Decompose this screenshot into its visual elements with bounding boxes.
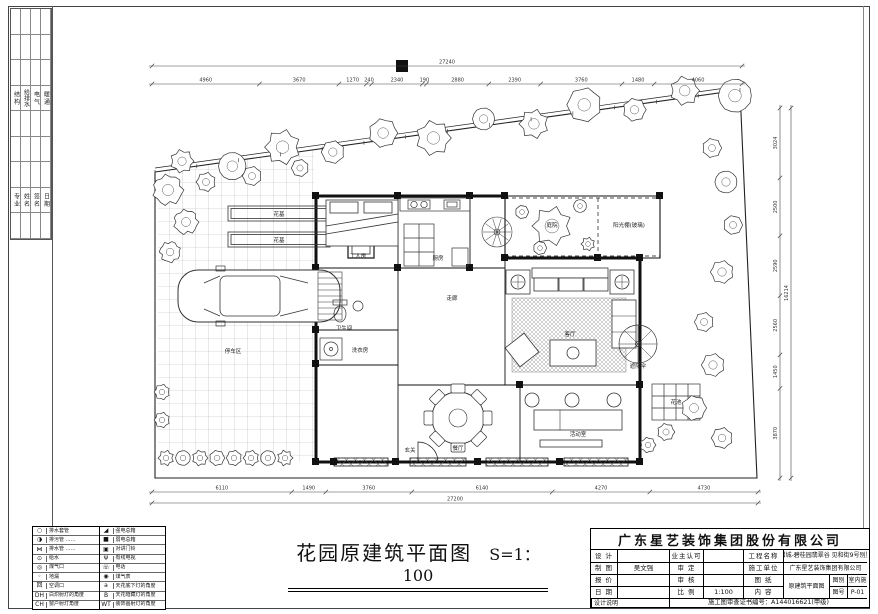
svg-text:240: 240: [364, 78, 374, 84]
legend-row: ▣对讲门铃: [100, 545, 166, 554]
legend-row: B天花暗藏灯的角度: [100, 592, 166, 601]
legend-symbol-icon: WT: [100, 602, 114, 608]
plan-title-block: 花园原建筑平面图 S=1：100: [288, 537, 548, 592]
floor-plan-drawing: 4960367012702402340190288023903760148040…: [0, 0, 878, 614]
room-label: 走廊: [446, 294, 458, 302]
content-label: 内 容: [743, 586, 783, 598]
room-label: 花池: [670, 398, 682, 406]
room-label: 洗衣房: [352, 346, 369, 354]
svg-text:3670: 3670: [293, 78, 306, 84]
room-label: 阳光棚(玻璃): [613, 221, 645, 229]
legend-symbol-icon: 回: [33, 583, 47, 589]
dining-table: [424, 384, 492, 452]
legend-symbol-icon: DH: [33, 593, 47, 599]
contractor-value: 广东星艺装饰集团有限公司: [783, 562, 867, 574]
legend-label: 煤气表: [114, 575, 131, 580]
window-sill: [564, 458, 628, 466]
svg-text:3870: 3870: [773, 427, 779, 440]
legend-symbol-icon: ☏: [100, 565, 114, 571]
svg-text:1450: 1450: [773, 365, 779, 378]
spiral-feature: [482, 217, 512, 247]
legend-label: 给水: [47, 556, 59, 561]
legend-row: a天花底下灯的角度: [100, 582, 166, 591]
legend-label: 排污管 ……: [47, 538, 76, 543]
legend-symbol-icon: ⊙: [33, 556, 47, 562]
number-label: 图号: [829, 586, 847, 598]
legend-row: ○排水套管: [33, 527, 99, 536]
check-label: 审 核: [669, 574, 703, 586]
check-value: [703, 574, 743, 586]
parasol-symbol: [619, 325, 657, 363]
svg-text:4060: 4060: [692, 78, 705, 84]
legend-label: 有线电视: [114, 556, 136, 561]
svg-text:1480: 1480: [632, 78, 645, 84]
certificate-line: 施工图审查证书编号： A144016621(甲级): [669, 598, 867, 608]
category-value: 室内施: [847, 574, 867, 586]
ratio-value: 1:100: [703, 586, 743, 598]
svg-text:27240: 27240: [439, 60, 455, 66]
title-underline: [288, 588, 548, 592]
legend-row: ◉煤气表: [100, 573, 166, 582]
legend-symbol-icon: ⋈: [33, 547, 47, 553]
room-label: 花基: [273, 210, 285, 218]
bed-symbol: [326, 200, 398, 246]
window-sill: [334, 458, 388, 466]
title-block: 广东星艺装饰集团股份有限公司 设 计 业主认可 工程名称 增城-碧桂园翡翠谷 见…: [590, 528, 870, 608]
legend-row: ☏电话: [100, 564, 166, 573]
legend-row: ⋈排水管 ……: [33, 545, 99, 554]
approve-label: 审 定: [669, 562, 703, 574]
legend-row: Ψ有线电视: [100, 555, 166, 564]
owner-label: 业主认可: [669, 550, 703, 562]
project-value: 增城-碧桂园翡翠谷 见和街9号别墅: [783, 550, 867, 562]
svg-text:3760: 3760: [362, 486, 375, 492]
category-label: 图别: [829, 574, 847, 586]
legend-row: CH窗户射灯角度: [33, 601, 99, 609]
contractor-label: 施工单位: [743, 562, 783, 574]
legend-column-right: ◢强电总箱■弱电总箱▣对讲门铃Ψ有线电视☏电话◉煤气表a天花底下灯的角度B天花暗…: [99, 527, 166, 609]
cert-value: A144016621(甲级): [771, 600, 829, 606]
svg-text:6140: 6140: [476, 486, 489, 492]
room-label: 卫生间: [336, 324, 353, 332]
quote-label: 报 价: [591, 574, 617, 586]
date-label: 日 期: [591, 586, 617, 598]
project-label: 工程名称: [743, 550, 783, 562]
legend-symbol-icon: CH: [33, 602, 47, 608]
sheet-label: 图 纸: [743, 574, 783, 586]
legend-table: ○排水套管◑排污管 ……⋈排水管 ……⊙给水◎煤气口◦地漏回空调口DH白炽射灯的…: [32, 526, 166, 610]
room-label: 客厅: [564, 330, 576, 338]
legend-label: 地漏: [47, 575, 59, 580]
svg-text:2390: 2390: [508, 78, 521, 84]
legend-symbol-icon: ◉: [100, 574, 114, 580]
svg-text:1270: 1270: [346, 78, 359, 84]
legend-label: 电话: [114, 565, 126, 570]
company-name: 广东星艺装饰集团股份有限公司: [591, 529, 869, 550]
svg-text:3760: 3760: [575, 78, 588, 84]
legend-row: WT装饰画射灯的角度: [100, 601, 166, 609]
design-value: [617, 550, 669, 562]
activity-table: [525, 393, 622, 447]
legend-label: 煤气口: [47, 565, 64, 570]
svg-text:1490: 1490: [302, 486, 315, 492]
washer-symbol: [320, 338, 342, 360]
legend-row: ◑排污管 ……: [33, 536, 99, 545]
svg-text:16214: 16214: [784, 285, 790, 301]
svg-text:4730: 4730: [698, 486, 711, 492]
date-value: [617, 586, 669, 598]
quote-value: [617, 574, 669, 586]
legend-column-left: ○排水套管◑排污管 ……⋈排水管 ……⊙给水◎煤气口◦地漏回空调口DH白炽射灯的…: [33, 527, 99, 609]
draft-value: 吴文强: [617, 562, 669, 574]
legend-label: 排水管 ……: [47, 547, 76, 552]
legend-label: 弱电总箱: [114, 538, 136, 543]
legend-row: ◦地漏: [33, 573, 99, 582]
legend-symbol-icon: Ψ: [100, 556, 114, 562]
ratio-label: 比 例: [669, 586, 703, 598]
svg-text:2880: 2880: [451, 78, 464, 84]
room-label: 玄关: [404, 446, 416, 454]
room-label: 停车区: [225, 347, 242, 355]
legend-symbol-icon: ◢: [100, 528, 114, 534]
room-label: 庭院: [546, 221, 558, 229]
approve-value: [703, 562, 743, 574]
legend-row: ■弱电总箱: [100, 536, 166, 545]
legend-symbol-icon: ○: [33, 528, 47, 534]
svg-text:2340: 2340: [391, 78, 404, 84]
room-label: 遮阳伞: [630, 362, 647, 370]
legend-label: 对讲门铃: [114, 547, 136, 552]
legend-label: 窗户射灯角度: [47, 602, 79, 607]
legend-row: ◎煤气口: [33, 564, 99, 573]
legend-label: 天花暗藏灯的角度: [114, 593, 156, 598]
note-label: 设计说明: [591, 598, 669, 608]
number-value: P-01: [847, 586, 867, 598]
drawing-sheet: 结 构给排水电 气暖 通专 业姓 名签 名日 期: [0, 0, 878, 614]
room-label: 花基: [273, 236, 285, 244]
room-label: 餐厅: [452, 444, 464, 452]
legend-symbol-icon: B: [100, 593, 114, 599]
plan-title: 花园原建筑平面图: [296, 541, 472, 565]
legend-label: 装饰画射灯的角度: [114, 602, 156, 607]
sofa-set: [505, 268, 636, 372]
svg-text:2590: 2590: [773, 259, 779, 272]
legend-label: 强电总箱: [114, 529, 136, 534]
svg-text:2500: 2500: [773, 201, 779, 214]
cert-label: 施工图审查证书编号：: [708, 600, 771, 606]
car-symbol: [178, 266, 340, 326]
legend-label: 排水套管: [47, 529, 69, 534]
legend-label: 天花底下灯的角度: [114, 584, 156, 589]
legend-symbol-icon: ▣: [100, 547, 114, 553]
legend-label: 空调口: [47, 584, 64, 589]
draft-label: 制 图: [591, 562, 617, 574]
sheet-content-value: 原建筑平面图: [783, 574, 829, 598]
svg-text:4960: 4960: [199, 78, 212, 84]
owner-value: [703, 550, 743, 562]
room-label: 厨房: [432, 254, 444, 262]
legend-row: DH白炽射灯的角度: [33, 592, 99, 601]
legend-symbol-icon: ■: [100, 537, 114, 543]
legend-symbol-icon: ◎: [33, 565, 47, 571]
svg-text:3024: 3024: [773, 137, 779, 150]
legend-row: ◢强电总箱: [100, 527, 166, 536]
room-label: 工人房: [350, 252, 367, 260]
legend-label: 白炽射灯的角度: [47, 593, 84, 598]
legend-row: ⊙给水: [33, 555, 99, 564]
design-label: 设 计: [591, 550, 617, 562]
legend-symbol-icon: a: [100, 583, 114, 589]
svg-text:4270: 4270: [595, 486, 608, 492]
legend-symbol-icon: ◑: [33, 537, 47, 543]
svg-text:6110: 6110: [215, 486, 228, 492]
legend-symbol-icon: ◦: [33, 574, 47, 580]
svg-text:27200: 27200: [447, 497, 463, 503]
window-sill: [486, 458, 548, 466]
room-label: 活动室: [570, 430, 587, 438]
svg-text:2560: 2560: [773, 319, 779, 332]
legend-row: 回空调口: [33, 582, 99, 591]
